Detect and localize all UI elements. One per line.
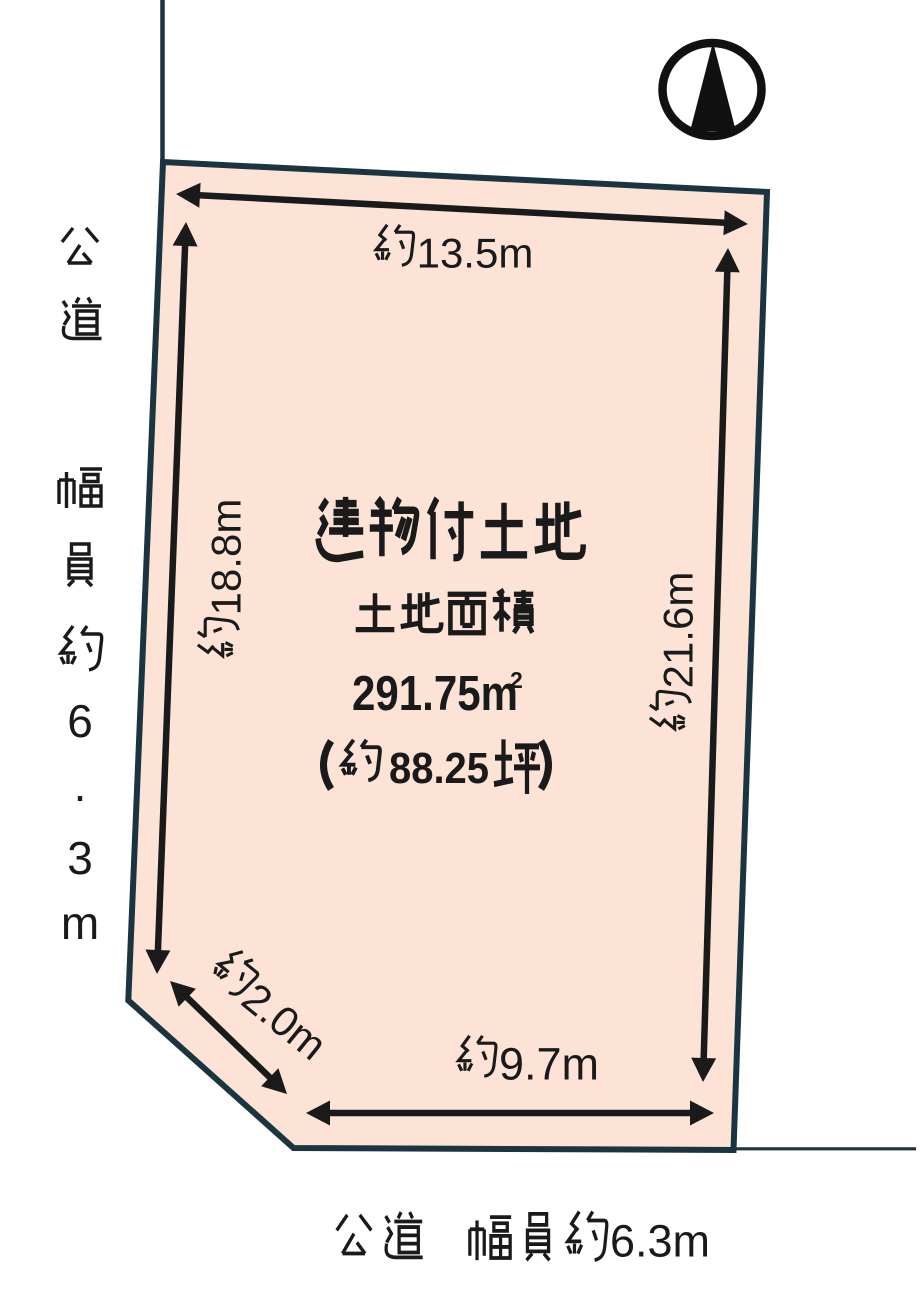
svg-text:m: m [61, 897, 99, 949]
svg-text:18.8m: 18.8m [202, 499, 249, 616]
svg-text:291.75m: 291.75m [352, 667, 518, 721]
svg-text:3: 3 [67, 832, 93, 884]
svg-text:88.25: 88.25 [389, 744, 489, 793]
svg-text:6: 6 [67, 695, 93, 747]
svg-text:.: . [74, 759, 87, 811]
svg-text:21.6m: 21.6m [654, 572, 701, 689]
svg-text:2: 2 [510, 667, 523, 693]
svg-text:9.7m: 9.7m [499, 1038, 599, 1089]
svg-text:13.5m: 13.5m [417, 229, 534, 276]
svg-text:6.3m: 6.3m [610, 1215, 710, 1266]
